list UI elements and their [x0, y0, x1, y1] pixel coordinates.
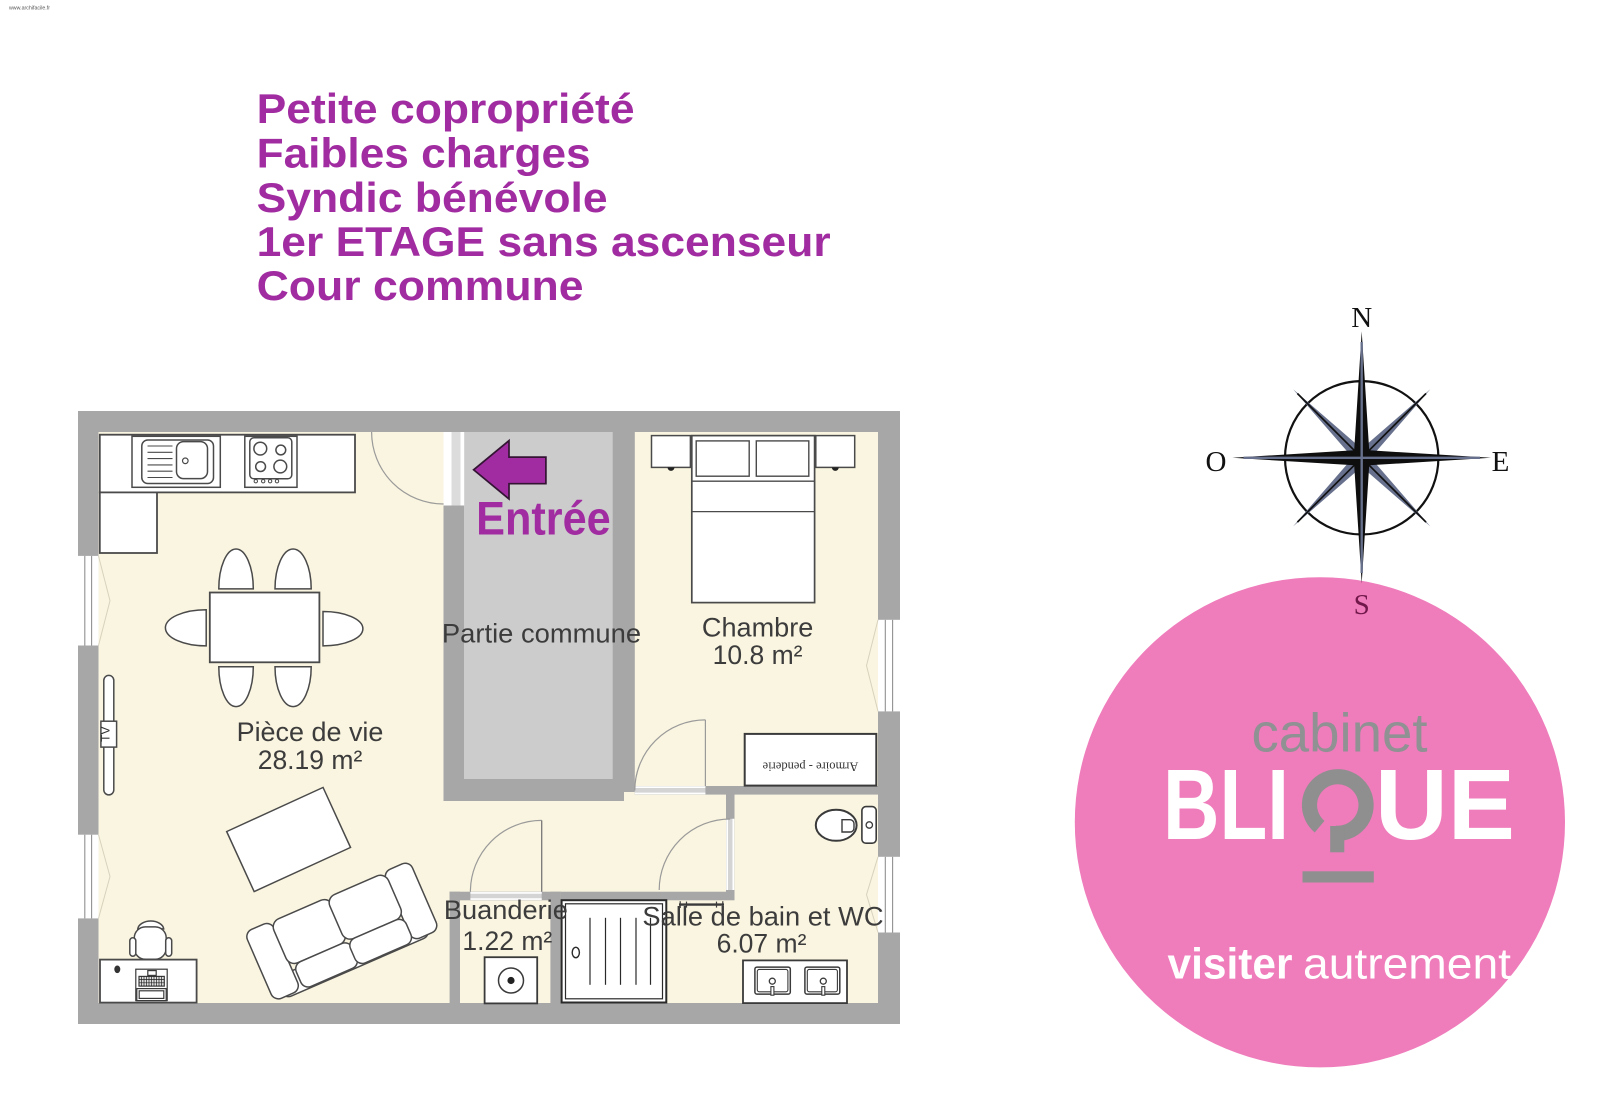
svg-text:10.8 m²: 10.8 m²	[713, 640, 803, 670]
svg-text:Syndic bénévole: Syndic bénévole	[257, 174, 608, 221]
svg-text:Buanderie: Buanderie	[444, 895, 568, 925]
svg-text:Petite copropriété: Petite copropriété	[257, 85, 635, 132]
svg-text:Cour commune: Cour commune	[257, 262, 584, 309]
svg-text:TV: TV	[99, 727, 113, 742]
svg-text:O: O	[1206, 446, 1227, 478]
svg-text:www.archifacile.fr: www.archifacile.fr	[8, 6, 50, 12]
svg-text:Entrée: Entrée	[476, 492, 611, 545]
svg-text:28.19 m²: 28.19 m²	[258, 745, 363, 775]
svg-text:autrement: autrement	[1303, 941, 1511, 989]
svg-text:UE: UE	[1375, 749, 1515, 861]
svg-text:E: E	[1492, 446, 1510, 478]
svg-text:Chambre: Chambre	[702, 612, 813, 642]
svg-text:visiter: visiter	[1168, 941, 1293, 989]
svg-text:Partie commune: Partie commune	[442, 618, 641, 648]
svg-text:6.07 m²: 6.07 m²	[717, 929, 807, 959]
svg-text:Armoire - penderie: Armoire - penderie	[762, 760, 858, 774]
svg-text:1er ETAGE sans ascenseur: 1er ETAGE sans ascenseur	[257, 218, 831, 265]
svg-text:Pièce de vie: Pièce de vie	[237, 717, 384, 747]
svg-text:Salle de bain et WC: Salle de bain et WC	[642, 902, 883, 932]
svg-text:1.22 m²: 1.22 m²	[462, 926, 552, 956]
svg-text:N: N	[1351, 302, 1372, 334]
svg-text:Faibles charges: Faibles charges	[257, 129, 591, 176]
svg-text:BLI: BLI	[1163, 749, 1289, 861]
svg-text:S: S	[1354, 589, 1370, 621]
